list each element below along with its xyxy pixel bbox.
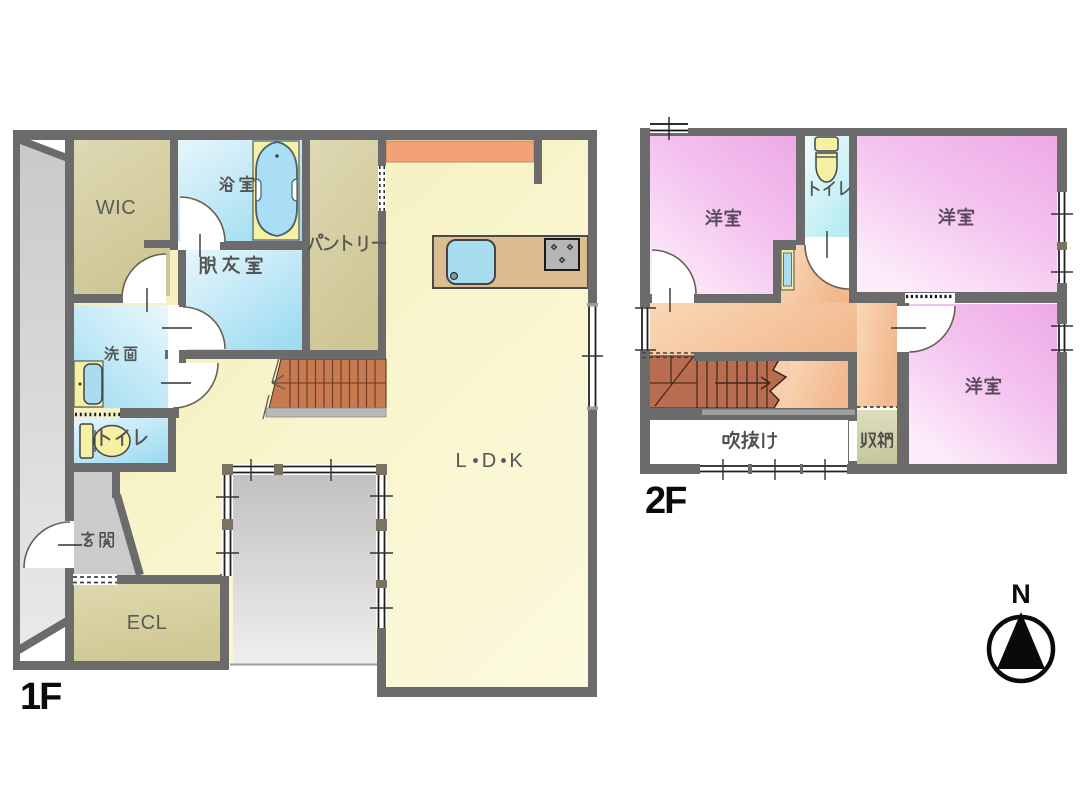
- svg-text:D: D: [482, 450, 496, 472]
- svg-text:L: L: [455, 450, 466, 472]
- svg-text:1F: 1F: [20, 676, 61, 718]
- svg-text:2F: 2F: [645, 480, 686, 522]
- svg-text:N: N: [1011, 579, 1031, 609]
- svg-text:ECL: ECL: [127, 612, 167, 634]
- svg-text:K: K: [509, 450, 523, 472]
- svg-text:WIC: WIC: [96, 197, 136, 219]
